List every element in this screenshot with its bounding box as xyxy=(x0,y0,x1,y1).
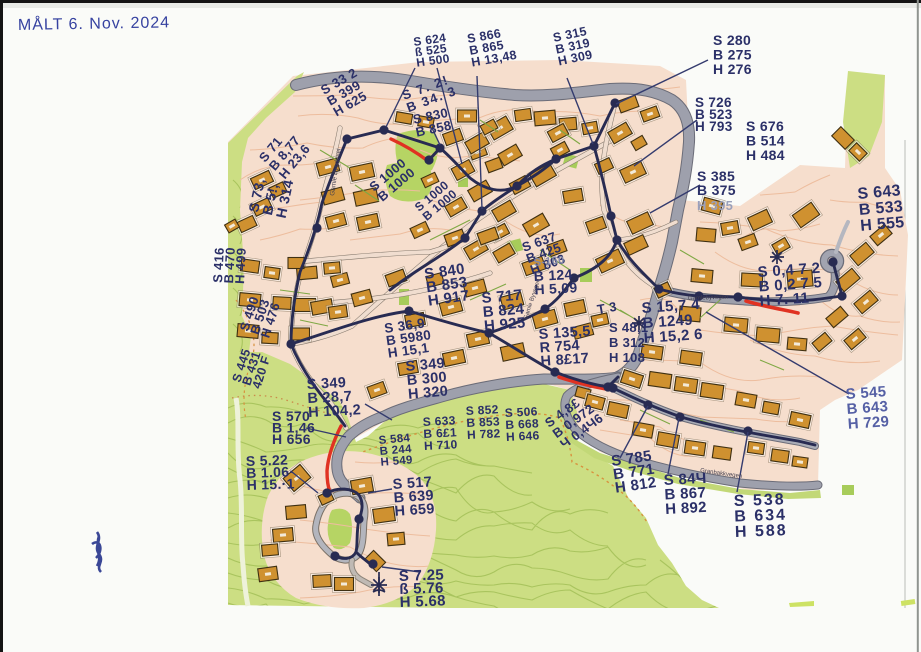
svg-text:S 584B 244H 549: S 584B 244H 549 xyxy=(378,432,413,469)
svg-text:S 538B 634H 588: S 538B 634H 588 xyxy=(734,491,788,541)
svg-text:S 280B 275H 276: S 280B 275H 276 xyxy=(713,32,752,77)
svg-text:S 5.22B 1.06·H 15.·1: S 5.22B 1.06·H 15.·1 xyxy=(246,451,295,493)
svg-text:S 84ЧB 867H 892: S 84ЧB 867H 892 xyxy=(663,470,708,518)
svg-text:S 785B 771H 812: S 785B 771H 812 xyxy=(610,447,657,496)
svg-text:S 570B 1,46H 656: S 570B 1,46H 656 xyxy=(272,408,315,447)
svg-text:S 676B 514H 484: S 676B 514H 484 xyxy=(746,118,785,163)
svg-text:S 643B 533H 555: S 643B 533H 555 xyxy=(857,182,905,235)
svg-text:S 349B 300H 320: S 349B 300H 320 xyxy=(405,356,449,403)
svg-text:S 7.25ß 5.76H 5.68: S 7.25ß 5.76H 5.68 xyxy=(399,566,446,611)
svg-text:S 717B 824H 925: S 717B 824H 925 xyxy=(481,286,527,334)
svg-text:S 416B 470H 499: S 416B 470H 499 xyxy=(210,246,249,284)
svg-text:S 633B 6£1H 710: S 633B 6£1H 710 xyxy=(422,413,457,453)
svg-text:H 395: H 395 xyxy=(697,198,733,213)
svg-text:S 840B 853H 917: S 840B 853H 917 xyxy=(423,260,470,309)
svg-text:S 726B 523H 793: S 726B 523H 793 xyxy=(695,95,733,134)
svg-text:S 385B 375: S 385B 375 xyxy=(697,168,736,198)
svg-text:S 517B 639H 659: S 517B 639H 659 xyxy=(392,474,435,520)
svg-text:S 852B 853H 782: S 852B 853H 782 xyxy=(465,402,500,442)
svg-text:S 506B 668H 646: S 506B 668H 646 xyxy=(504,404,539,444)
svg-text:S 545B 643H 729: S 545B 643H 729 xyxy=(845,383,890,433)
svg-text:S 624ß 525H 500: S 624ß 525H 500 xyxy=(412,30,450,69)
